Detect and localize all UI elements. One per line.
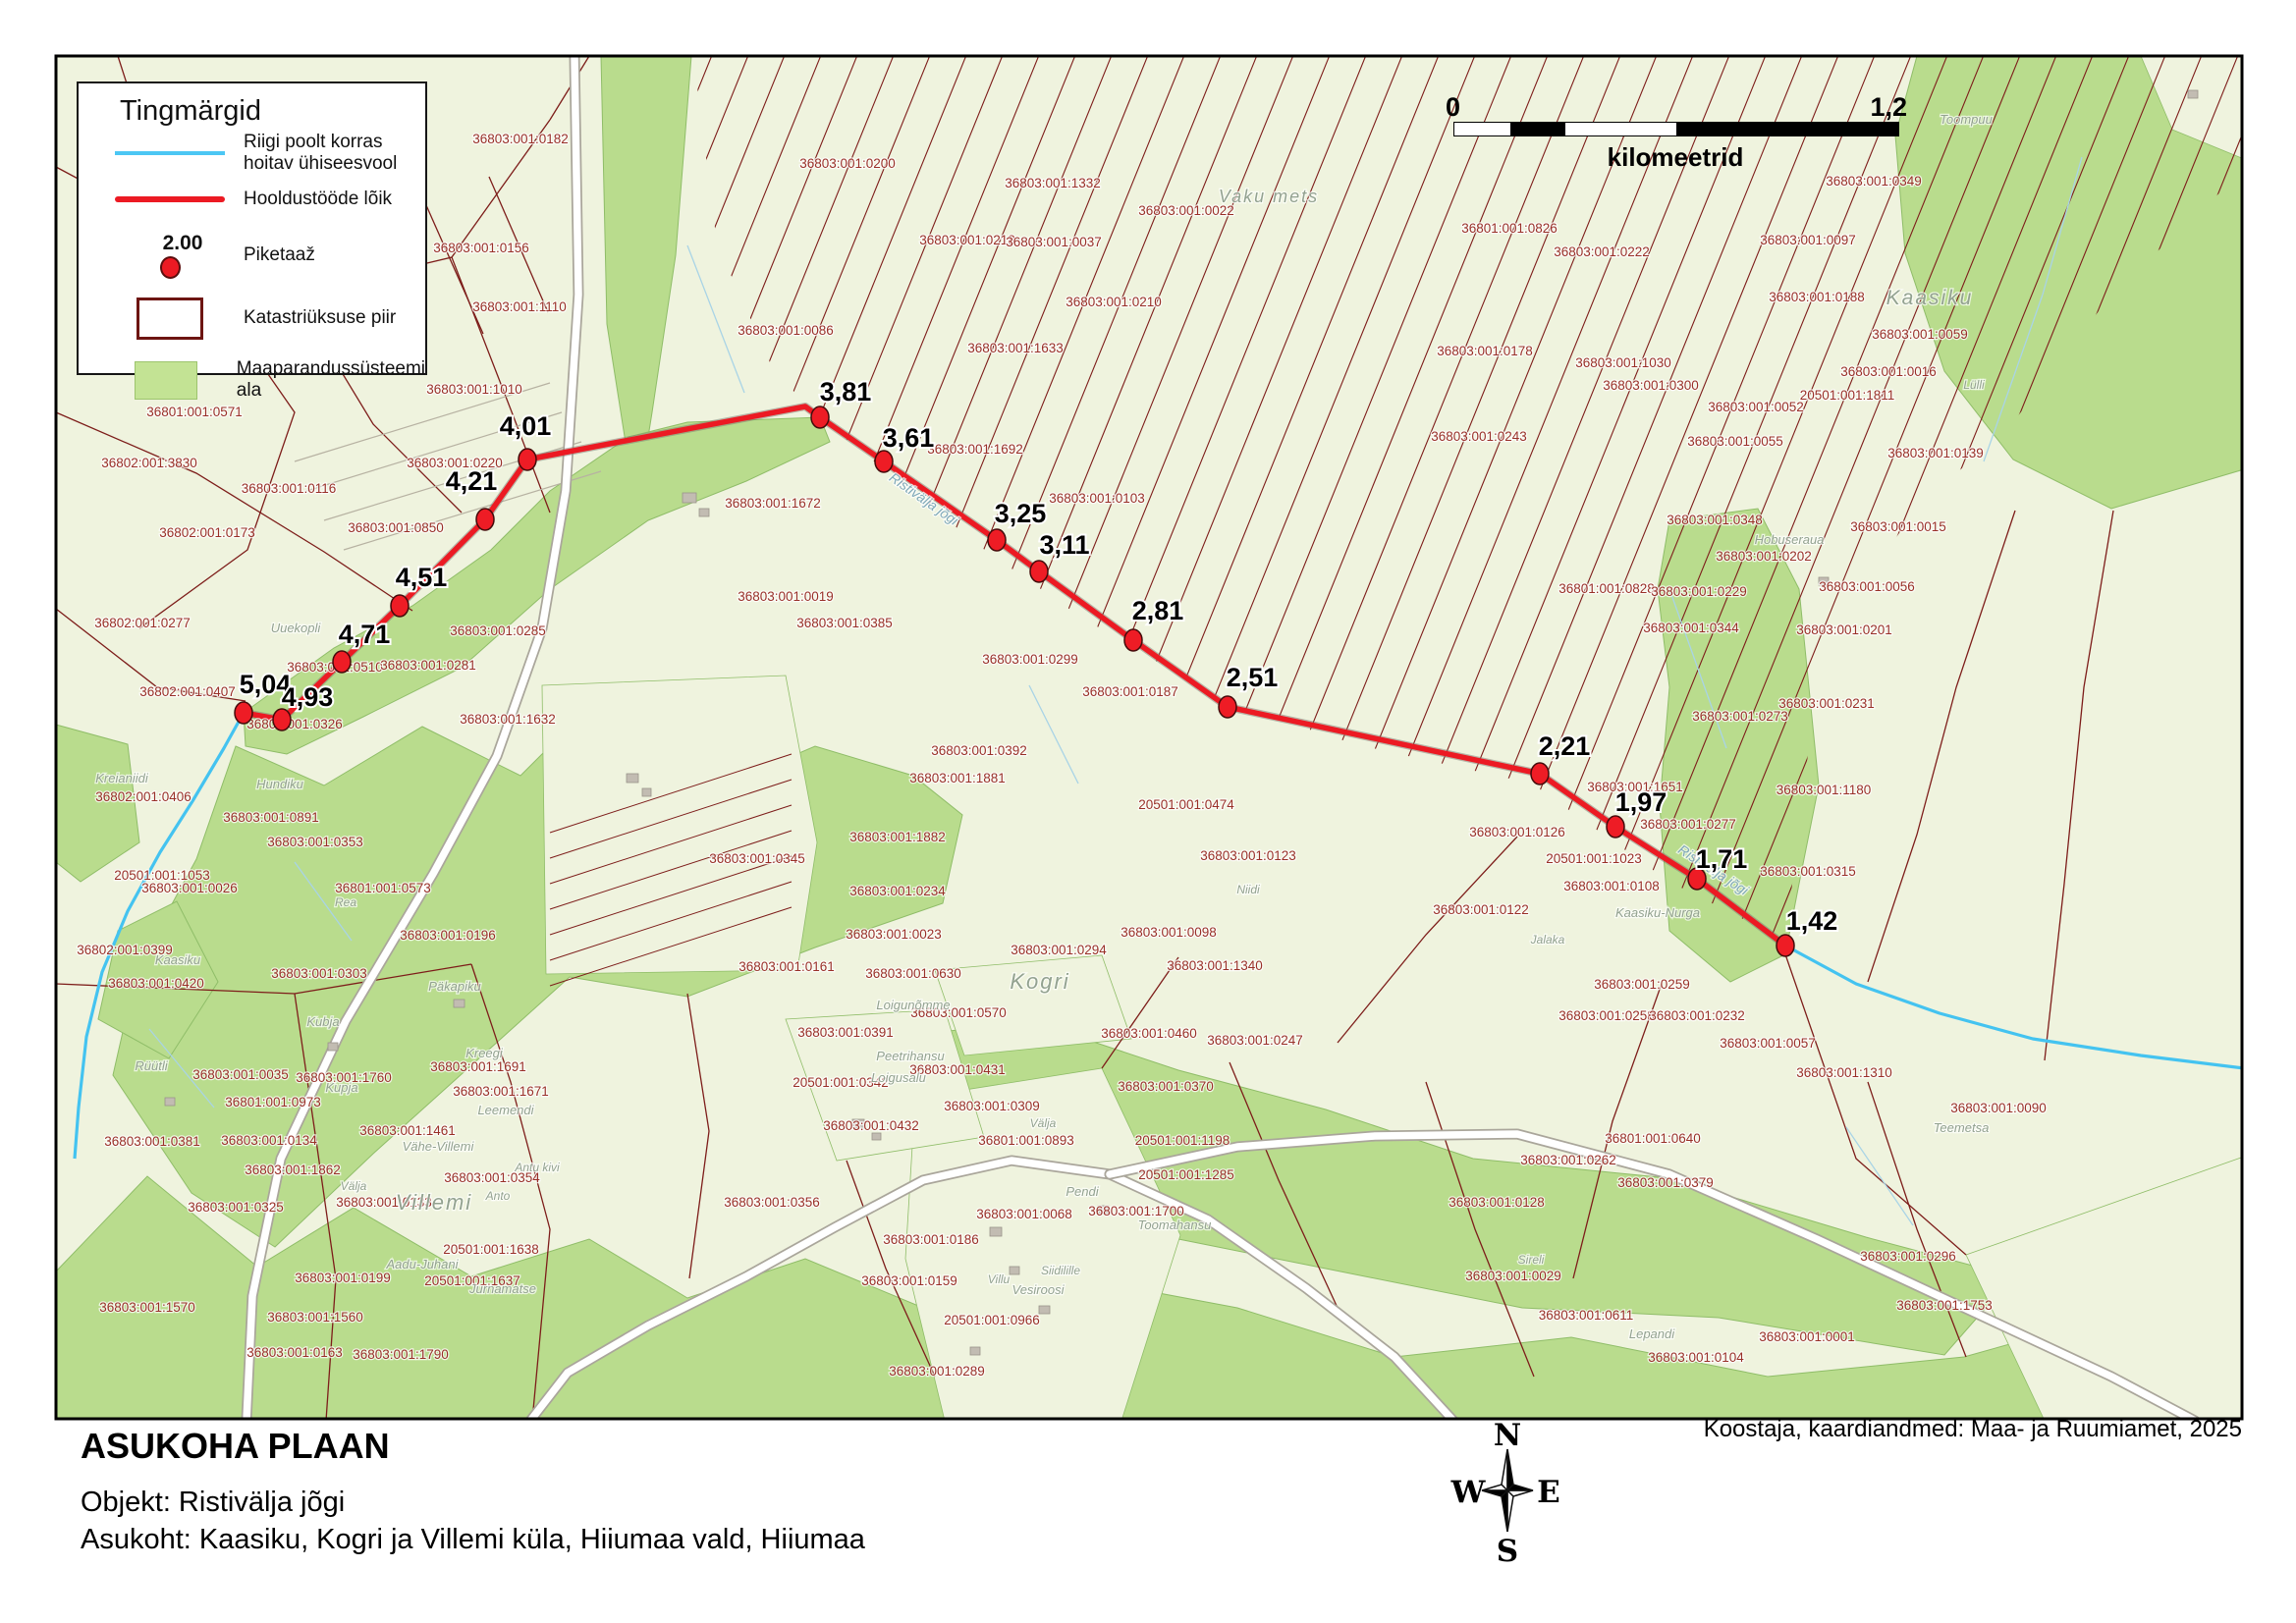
place-label: Antu kivi (514, 1161, 560, 1174)
parcel-label: 36803:001:0126 (1469, 825, 1565, 839)
parcel-label: 36802:001:0407 (139, 684, 236, 699)
piketaaz-marker (1219, 696, 1236, 718)
parcel-label: 36803:001:0325 (188, 1200, 284, 1215)
parcel-label: 36801:001:0640 (1605, 1131, 1701, 1146)
parcel-label: 36803:001:0134 (221, 1133, 317, 1148)
parcel-label: 36803:001:1691 (430, 1059, 526, 1074)
parcel-label: 36803:001:1632 (460, 712, 556, 727)
parcel-label: 36803:001:0229 (1651, 584, 1747, 599)
parcel-label: 36801:001:0826 (1461, 221, 1558, 236)
parcel-label: 36803:001:0059 (1872, 327, 1968, 342)
piketaaz-marker (988, 529, 1006, 551)
parcel-label: 36803:001:0122 (1433, 902, 1529, 917)
parcel-label: 36803:001:0016 (1840, 364, 1937, 379)
parcel-label: 36803:001:0385 (796, 616, 893, 630)
parcel-label: 36803:001:1570 (99, 1300, 195, 1315)
piketaaz-label: 4,21 (446, 466, 498, 496)
parcel-label: 36803:001:1672 (725, 496, 821, 511)
piketaaz-marker (1124, 629, 1142, 651)
place-label: Rüütli (135, 1058, 168, 1073)
piketaaz-marker (273, 709, 291, 730)
location-plan-page: 36803:001:018236803:001:020036803:001:01… (0, 0, 2296, 1623)
building (1039, 1306, 1050, 1314)
parcel-label: 36803:001:0243 (1431, 429, 1527, 444)
parcel-label: 36802:001:0406 (95, 789, 191, 804)
compass-star-icon (1482, 1449, 1533, 1532)
parcel-label: 36803:001:0187 (1082, 684, 1178, 699)
place-label: Toomahansu (1138, 1217, 1212, 1232)
place-label: Kaasiku-Nurga (1615, 905, 1700, 920)
parcel-label: 36803:001:0128 (1449, 1195, 1545, 1210)
parcel-label: 36803:001:0326 (246, 717, 343, 731)
scale-bar: 0 1,2 kilomeetrid (1444, 92, 1907, 173)
parcel-label: 36803:001:0037 (1006, 235, 1102, 249)
place-label: Kogri (1010, 969, 1069, 994)
piketaaz-label: 3,61 (883, 423, 935, 453)
parcel-label: 36803:001:0055 (1687, 434, 1783, 449)
parcel-label: 36803:001:0023 (846, 927, 942, 942)
piketaaz-label: 4,93 (282, 682, 334, 712)
piketaaz-marker (1777, 935, 1794, 956)
parcel-label: 36803:001:0123 (1200, 848, 1296, 863)
parcel-label: 36803:001:0232 (1649, 1008, 1745, 1023)
piketaaz-label: 1,71 (1696, 844, 1748, 874)
parcel-label: 36801:001:0573 (335, 881, 431, 895)
parcel-label: 36803:001:0178 (1437, 344, 1533, 358)
parcel-outline-icon (137, 298, 203, 340)
parcel-label: 36803:001:0285 (450, 623, 546, 638)
parcel-label: 36803:001:0068 (976, 1207, 1072, 1221)
parcel-label: 36803:001:0210 (1066, 295, 1162, 309)
parcel-label: 36801:001:0893 (978, 1133, 1074, 1148)
place-label: Kaasiku (1886, 287, 1974, 309)
building (990, 1227, 1002, 1236)
parcel-label: 36803:001:0056 (1819, 579, 1915, 594)
place-label: Hobuseraua (1755, 532, 1825, 547)
piketaaz-marker (235, 702, 252, 724)
place-label: Leemendi (477, 1103, 534, 1117)
parcel-label: 36803:001:0156 (433, 241, 529, 255)
parcel-label: 36803:001:0303 (271, 966, 367, 981)
parcel-label: 36803:001:0294 (1011, 943, 1107, 957)
place-label: Vesiroosi (1012, 1282, 1066, 1297)
place-label: Jurnamatse (468, 1281, 536, 1296)
object-line: Objekt: Ristivälja jõgi (81, 1487, 345, 1519)
place-label: Kaasiku (155, 952, 200, 967)
parcel-label: 36803:001:0348 (1667, 513, 1763, 527)
piketaaz-marker (1030, 561, 1048, 582)
compass-west-label: W (1450, 1475, 1487, 1510)
place-label: Villu (988, 1272, 1011, 1286)
parcel-label: 36803:001:0381 (104, 1134, 200, 1149)
parcel-label: 36803:001:0116 (242, 481, 337, 496)
parcel-label: 36803:001:0891 (223, 810, 319, 825)
parcel-label: 36803:001:0344 (1643, 621, 1739, 635)
parcel-label: 36803:001:0202 (1716, 549, 1812, 564)
parcel-label: 20501:001:0966 (944, 1313, 1040, 1327)
parcel-label: 36803:001:1461 (359, 1123, 456, 1138)
legend-item-piketaaz: 2.00 Piketaaž (96, 224, 425, 287)
piketaaz-marker (875, 451, 893, 472)
red-dot-icon (160, 256, 181, 279)
parcel-label: 36803:001:0309 (944, 1099, 1040, 1113)
parcel-label: 20501:001:1638 (443, 1242, 539, 1257)
parcel-label: 36802:001:3830 (101, 456, 197, 470)
building (970, 1347, 980, 1355)
parcel-label: 36803:001:1310 (1796, 1065, 1892, 1080)
place-label: Jalaka (1530, 933, 1565, 947)
piketaaz-marker (391, 595, 409, 617)
scale-segment (1565, 123, 1676, 135)
parcel-label: 36803:001:0345 (709, 851, 805, 866)
place-label: Villemi (396, 1190, 472, 1215)
parcel-label: 36803:001:0188 (1769, 290, 1865, 304)
parcel-label: 36803:001:0356 (724, 1195, 820, 1210)
parcel-label: 20501:001:0474 (1138, 797, 1234, 812)
parcel-label: 36803:001:0262 (1520, 1153, 1616, 1167)
building (454, 1000, 465, 1007)
parcel-label: 36803:001:1332 (1005, 176, 1101, 190)
compass-north-label: N (1494, 1418, 1521, 1453)
piketaaz-label: 1,42 (1786, 906, 1838, 936)
parcel-label: 36803:001:0392 (931, 743, 1027, 758)
parcel-label: 36803:001:1180 (1777, 783, 1872, 797)
building (1010, 1267, 1019, 1274)
parcel-label: 36803:001:0201 (1796, 622, 1892, 637)
place-label: Siidilille (1041, 1264, 1080, 1277)
parcel-label: 36803:001:0289 (889, 1364, 985, 1379)
parcel-label: 36803:001:0850 (348, 520, 444, 535)
parcel-label: 36803:001:0108 (1563, 879, 1660, 893)
place-label: Lepandi (1629, 1326, 1675, 1341)
parcel-label: 36803:001:1560 (267, 1310, 363, 1325)
parcel-label: 36803:001:0432 (823, 1118, 919, 1133)
parcel-label: 36803:001:0026 (141, 881, 238, 895)
legend: Tingmärgid Riigi poolt korras hoitav ühi… (77, 81, 427, 375)
parcel-label: 36803:001:1753 (1896, 1298, 1993, 1313)
red-line-icon (115, 196, 225, 202)
piketaaz-marker (476, 509, 494, 530)
scale-start-label: 0 (1446, 92, 1460, 123)
building (683, 493, 696, 503)
parcel-label: 20501:001:1285 (1138, 1167, 1234, 1182)
parcel-label: 36803:001:1882 (849, 830, 946, 844)
piketaaz-label: 1,97 (1615, 787, 1667, 817)
parcel-label: 36803:001:0259 (1594, 977, 1690, 992)
parcel-label: 36803:001:0234 (849, 884, 946, 898)
parcel-label: 36803:001:1700 (1088, 1204, 1184, 1218)
piketaaz-marker (333, 651, 351, 673)
parcel-label: 36803:001:0231 (1778, 696, 1875, 711)
parcel-label: 36803:001:0161 (738, 959, 835, 974)
parcel-label: 36803:001:0090 (1950, 1101, 2047, 1115)
parcel-label: 36803:001:1862 (245, 1163, 341, 1177)
place-label: Lülli (1963, 378, 1985, 392)
parcel-label: 36803:001:1790 (353, 1347, 449, 1362)
parcel-label: 36803:001:0630 (865, 966, 961, 981)
parcel-label: 36802:001:0277 (94, 616, 191, 630)
parcel-label: 36803:001:0098 (1121, 925, 1217, 940)
piketaaz-label: 2,51 (1227, 663, 1279, 692)
parcel-label: 20501:001:1811 (1800, 388, 1895, 403)
building (328, 1043, 338, 1051)
parcel-label: 36803:001:1692 (927, 442, 1023, 457)
place-label: Teemetsa (1934, 1120, 1990, 1135)
parcel-label: 36803:001:0035 (192, 1067, 289, 1082)
place-label: Kupja (325, 1080, 357, 1095)
parcel-label: 36803:001:1633 (967, 341, 1064, 355)
building (165, 1098, 175, 1106)
parcel-label: 36803:001:0159 (861, 1273, 957, 1288)
parcel-label: 36803:001:0186 (883, 1232, 979, 1247)
place-label: Uuekopli (271, 621, 322, 635)
piketaaz-label: 3,81 (820, 377, 872, 406)
parcel-label: 36803:001:0200 (799, 156, 896, 171)
parcel-label: 36803:001:0222 (1554, 244, 1650, 259)
place-label: Sireli (1518, 1253, 1545, 1267)
parcel-label: 36803:001:0097 (1760, 233, 1856, 247)
legend-title: Tingmärgid (120, 95, 425, 128)
location-line: Asukoht: Kaasiku, Kogri ja Villemi küla,… (81, 1524, 865, 1556)
piketaaz-label: 3,11 (1039, 530, 1089, 560)
place-label: Välja (341, 1179, 367, 1193)
building (872, 1133, 881, 1140)
piketaaz-label: 4,71 (339, 620, 391, 649)
parcel-label: 36803:001:1030 (1575, 355, 1671, 370)
piketaaz-label: 4,51 (396, 563, 448, 592)
parcel-label: 36803:001:0296 (1860, 1249, 1956, 1264)
parcel-label: 36803:001:0103 (1049, 491, 1145, 506)
scale-bar-segments (1453, 122, 1899, 136)
parcel-label: 36803:001:0029 (1465, 1269, 1561, 1283)
compass-south-label: S (1497, 1534, 1518, 1569)
place-label: Kubja (306, 1014, 339, 1029)
piketaaz-marker (1531, 763, 1549, 784)
piketaaz-marker (519, 449, 536, 470)
place-label: Loigunõmme (876, 998, 950, 1012)
parcel-label: 36803:001:0139 (1887, 446, 1984, 460)
building (642, 788, 651, 796)
compass-rose: N S W E (1429, 1412, 1586, 1579)
parcel-label: 36803:001:0196 (400, 928, 496, 943)
place-label: Anto (485, 1189, 511, 1203)
parcel-label: 36803:001:0277 (1640, 817, 1736, 832)
page-title: ASUKOHA PLAAN (81, 1426, 390, 1467)
parcel-label: 36803:001:0199 (295, 1271, 391, 1285)
parcel-label: 36803:001:0218 (919, 233, 1015, 247)
building (2188, 90, 2198, 98)
parcel-label: 36803:001:0460 (1101, 1026, 1197, 1041)
parcel-label: 36803:001:0300 (1603, 378, 1699, 393)
parcel-label: 36803:001:0379 (1617, 1175, 1714, 1190)
parcel-label: 36803:001:1671 (453, 1084, 549, 1099)
parcel-label: 36803:001:0391 (797, 1025, 894, 1040)
credit-line: Koostaja, kaardiandmed: Maa- ja Ruumiame… (1704, 1416, 2242, 1443)
piketaaz-marker (1607, 816, 1624, 838)
legend-item-drainage-area: Maaparandussüsteemi ala (96, 350, 425, 410)
scale-segment (1454, 123, 1510, 135)
scale-segment (1510, 123, 1566, 135)
compass-east-label: E (1537, 1475, 1560, 1510)
place-label: Vaku mets (1219, 187, 1319, 206)
place-label: Rea (335, 895, 356, 909)
parcel-label: 36802:001:0173 (159, 525, 255, 540)
piketaaz-label: 3,25 (995, 499, 1047, 528)
parcel-label: 36803:001:0353 (267, 835, 363, 849)
parcel-label: 36803:001:0052 (1708, 400, 1804, 414)
parcel-label: 36803:001:0015 (1850, 519, 1946, 534)
place-label: Aadu-Juhani (386, 1257, 460, 1271)
piketaaz-sample-value: 2.00 (163, 232, 203, 255)
parcel-label: 20501:001:1023 (1546, 851, 1642, 866)
parcel-label: 36801:001:0828 (1558, 581, 1655, 596)
piketaaz-marker (811, 406, 829, 428)
parcel-label: 36803:001:0001 (1759, 1329, 1855, 1344)
parcel-label: 36803:001:0281 (380, 658, 476, 673)
place-label: Pendi (1066, 1184, 1099, 1199)
parcel-label: 36803:001:1340 (1167, 958, 1263, 973)
parcel-label: 36803:001:0258 (1558, 1008, 1655, 1023)
parcel-label: 36803:001:1881 (909, 771, 1006, 785)
parcel-label: 36803:001:1010 (426, 382, 522, 397)
legend-item-maintenance: Hooldustööde lõik (96, 175, 425, 224)
place-label: Toompuu (1940, 112, 1993, 127)
piketaaz-label: 2,21 (1539, 731, 1591, 761)
parcel-label: 20501:001:1198 (1135, 1133, 1230, 1148)
place-label: Hundiku (256, 777, 303, 791)
place-label: Kreegi (465, 1046, 504, 1060)
place-label: Välja (1030, 1116, 1057, 1130)
piketaaz-label: 2,81 (1132, 596, 1184, 625)
legend-item-watercourse: Riigi poolt korras hoitav ühiseesvool (96, 132, 425, 175)
place-label: Loigusalu (871, 1070, 926, 1085)
parcel-label: 36803:001:0182 (472, 132, 569, 146)
parcel-label: 36803:001:0019 (738, 589, 834, 604)
scale-end-label: 1,2 (1870, 92, 1907, 123)
piketaaz-label: 4,01 (500, 411, 552, 441)
place-label: Niidi (1236, 883, 1260, 896)
parcel-label: 36803:001:0420 (108, 976, 204, 991)
parcel-label: 36803:001:1110 (472, 299, 567, 314)
place-label: Peetrihansu (876, 1049, 944, 1063)
parcel-label: 36803:001:0273 (1692, 709, 1788, 724)
place-label: Kreianiidi (95, 771, 149, 785)
parcel-label: 36803:001:0611 (1539, 1308, 1634, 1323)
scale-segment (1676, 123, 1898, 135)
building (699, 509, 709, 516)
place-label: Päkapiku (428, 979, 480, 994)
blue-line-icon (115, 151, 225, 155)
parcel-label: 36803:001:0104 (1648, 1350, 1744, 1365)
parcel-label: 36803:001:0299 (982, 652, 1078, 667)
parcel-label: 36803:001:0163 (246, 1345, 343, 1360)
parcel-label: 36803:001:0349 (1826, 174, 1922, 189)
place-label: Vähe-Villemi (403, 1139, 475, 1154)
legend-item-cadastral: Katastriüksuse piir (96, 289, 425, 348)
parcel-label: 36803:001:0370 (1118, 1079, 1214, 1094)
parcel-label: 36803:001:0247 (1207, 1033, 1303, 1048)
parcel-label: 36803:001:0086 (738, 323, 834, 338)
building (627, 774, 638, 783)
parcel-label: 36801:001:0973 (225, 1095, 321, 1109)
parcel-label: 36803:001:0315 (1760, 864, 1856, 879)
green-area-icon (135, 361, 197, 400)
parcel-label: 36803:001:0057 (1720, 1036, 1816, 1051)
scale-unit-label: kilomeetrid (1444, 142, 1907, 173)
